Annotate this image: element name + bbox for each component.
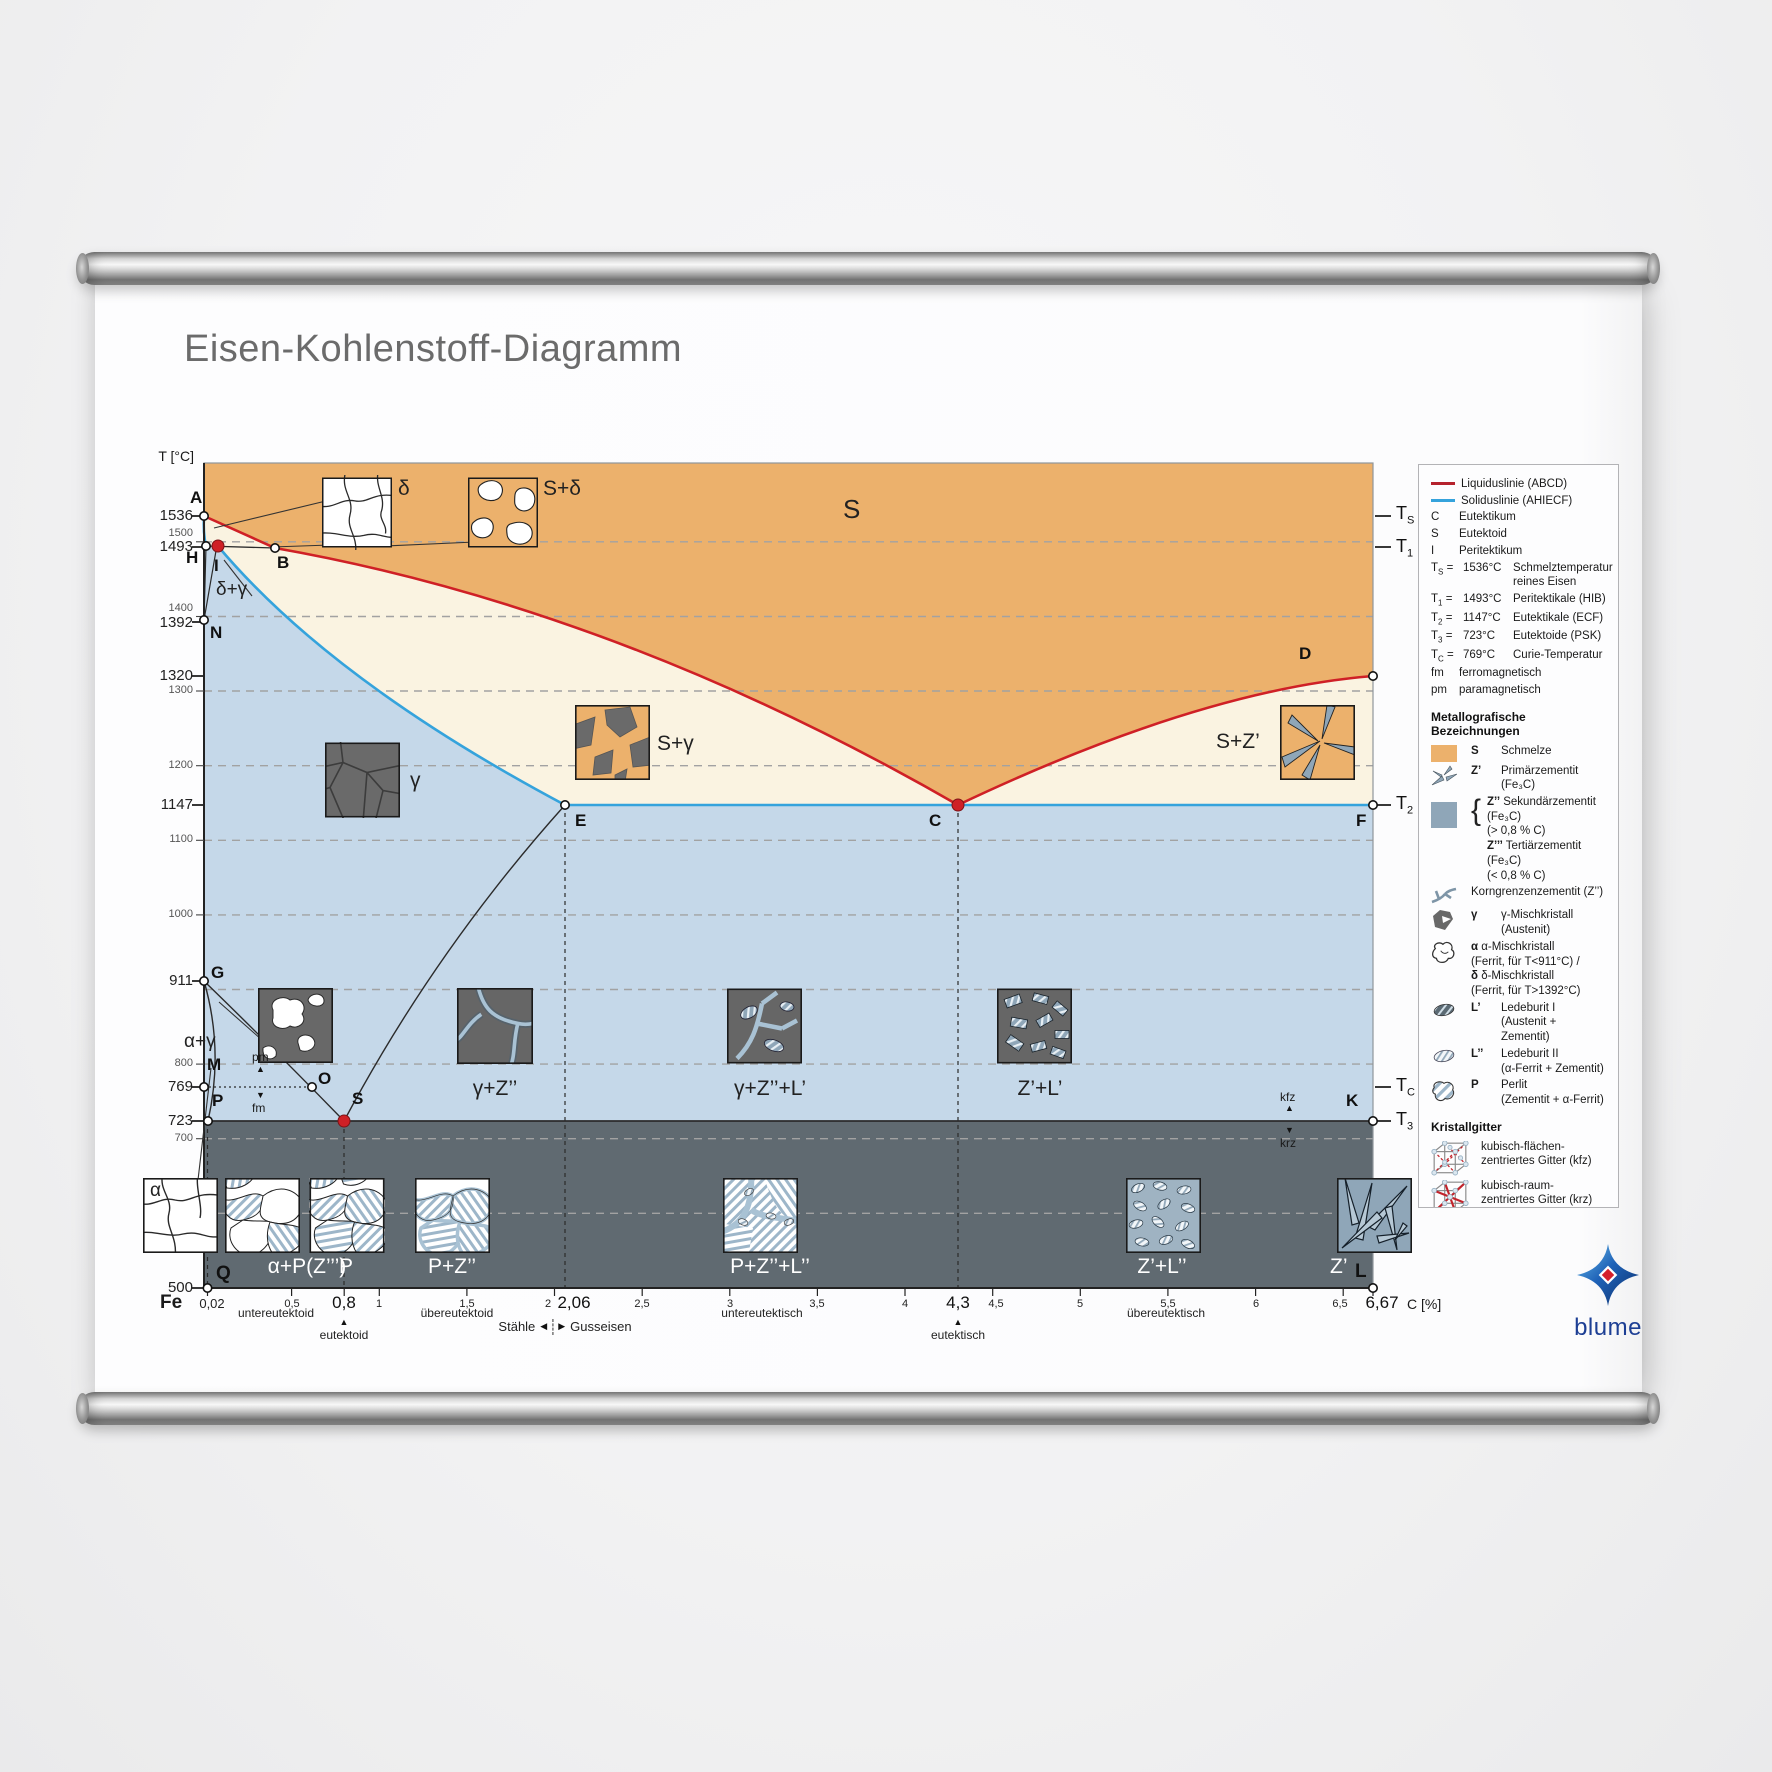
region-alpha-gamma: α+γ [184, 1032, 216, 1052]
right-ticks [1375, 516, 1391, 1121]
ledeburit2-icon [1431, 1047, 1465, 1064]
legend-key: TS = [1431, 561, 1457, 578]
micrograph-gamma [320, 738, 405, 823]
ytick-723: 723 [135, 1113, 193, 1129]
tmark-t1: T1 [1396, 537, 1413, 560]
perlit-icon [1431, 1078, 1465, 1105]
region-z1: Z’ [1330, 1256, 1348, 1278]
legend-desc: Curie-Temperatur [1513, 648, 1602, 663]
xtick-206: 2,06 [557, 1294, 590, 1312]
legend-key: S [1471, 744, 1495, 759]
sekundaerzementit-swatch-icon [1431, 795, 1465, 828]
legend-key: Z’ [1471, 764, 1495, 779]
legend-row-l1: L’ Ledeburit I(Austenit + Zementit) [1431, 1001, 1608, 1045]
arrow-up-kfz-icon: ▲ [1285, 1104, 1294, 1113]
legend-key: C [1431, 510, 1453, 525]
korngrenzenzementit-icon [1431, 885, 1465, 906]
legend-value: Korngrenzenzementit (Z’’) [1471, 885, 1603, 900]
micrograph-z1 [1337, 1178, 1412, 1253]
point-label-n: N [210, 624, 222, 642]
x-ticks [208, 1288, 1374, 1296]
micrograph-s-gamma [573, 705, 652, 782]
micrograph-delta [317, 473, 396, 552]
xtick-65: 6,5 [1332, 1299, 1347, 1311]
legend-key: L’ [1471, 1001, 1495, 1016]
xtick-1: 1 [376, 1299, 382, 1311]
x-axis-unit: C [%] [1407, 1297, 1441, 1312]
xtick-5: 5 [1077, 1299, 1083, 1311]
poster-title: Eisen-Kohlenstoff-Diagramm [184, 330, 682, 370]
xtick-2: 2 [545, 1299, 551, 1311]
legend-row-eutektoid: SEutektoid [1431, 527, 1608, 542]
xtick-4: 4 [902, 1299, 908, 1311]
region-s-z1: S+Z’ [1216, 731, 1260, 753]
legend-value: Eutektikum [1459, 510, 1516, 525]
region-gamma-z2-l1: γ+Z’’+L’ [734, 1078, 806, 1100]
legend-key: L’’ [1471, 1047, 1495, 1062]
micrograph-p-z2 [410, 1178, 495, 1256]
label-staehle-gusseisen: Stähle ◀ ▶ Gusseisen [498, 1319, 631, 1335]
y-major-ticks [192, 516, 204, 1288]
xtick-002: 0,02 [199, 1297, 224, 1311]
point-label-o: O [318, 1070, 331, 1088]
region-z1-l2: Z’+L’’ [1137, 1256, 1186, 1278]
arrow-up-eutektoid-icon: ▲ [340, 1318, 349, 1327]
legend-row-korn: Korngrenzenzementit (Z’’) [1431, 885, 1608, 906]
label-fm: fm [252, 1102, 265, 1115]
xtick-fe: Fe [160, 1293, 182, 1313]
xtick-35: 3,5 [809, 1299, 824, 1311]
region-gamma-z2: γ+Z’’ [473, 1078, 518, 1100]
ytick-1392: 1392 [135, 615, 193, 631]
legend-temp: 1536°C [1463, 561, 1507, 576]
label-untereutektisch: untereutektisch [721, 1307, 802, 1320]
legend-value: γ-Mischkristall (Austenit) [1501, 908, 1608, 937]
legend-key: TC = [1431, 648, 1457, 665]
legend-row-z2-z3: { Z’’ Sekundärzementit (Fe₃C) (> 0,8 % C… [1431, 795, 1608, 883]
legend-key: fm [1431, 666, 1453, 681]
label-gusseisen: Gusseisen [570, 1320, 631, 1334]
micrograph-gamma-z2-l1 [727, 989, 802, 1064]
legend-value: ferromagnetisch [1459, 666, 1541, 681]
legend-value: Peritektikum [1459, 544, 1522, 559]
ytick-911: 911 [135, 973, 193, 989]
xtick-667: 6,67 [1365, 1294, 1398, 1312]
poster-rail-bottom [78, 1392, 1658, 1425]
micrograph-z1-l2 [1126, 1178, 1201, 1253]
brace-icon: { [1471, 797, 1481, 824]
ytick-1000: 1000 [135, 909, 193, 921]
legend-solidus: Soliduslinie (AHIECF) [1431, 494, 1608, 509]
legend-row-t2: T2 = 1147°C Eutektikale (ECF) [1431, 611, 1608, 628]
ytick-1500: 1500 [135, 528, 193, 540]
point-label-h: H [186, 549, 198, 567]
xtick-08: 0,8 [332, 1294, 356, 1312]
divider-dashed [552, 1319, 553, 1335]
legend-row-kfz: kubisch-flächen-zentriertes Gitter (kfz) [1431, 1140, 1608, 1177]
xtick-43: 4,3 [946, 1294, 970, 1312]
tmark-tc: TC [1396, 1076, 1415, 1099]
legend-gitter-heading: Kristallgitter [1431, 1120, 1608, 1134]
point-label-m: M [207, 1056, 221, 1074]
legend-key: pm [1431, 683, 1453, 698]
legend-value: Schmelze [1501, 744, 1552, 759]
legend-alpha-delta-text: α α-Mischkristall (Ferrit, für T<911°C) … [1471, 940, 1581, 999]
ytick-1147: 1147 [135, 797, 193, 813]
label-krz: krz [1280, 1137, 1296, 1150]
tmark-t3: T3 [1396, 1110, 1413, 1133]
arrow-down-krz-icon: ▼ [1285, 1126, 1294, 1135]
arrow-up-eutektisch-icon: ▲ [954, 1318, 963, 1327]
ytick-700: 700 [135, 1133, 193, 1145]
legend-desc: Peritektikale (HIB) [1513, 592, 1606, 607]
blume-star-icon [1576, 1243, 1640, 1307]
micrograph-s-z1 [1280, 705, 1355, 780]
region-schmelze: S [843, 496, 860, 523]
legend-temp: 1147°C [1463, 611, 1507, 626]
label-eutektoid: eutektoid [320, 1329, 369, 1342]
legend-key: T3 = [1431, 629, 1457, 646]
legend-row-alpha-delta: α α-Mischkristall (Ferrit, für T<911°C) … [1431, 940, 1608, 999]
arrow-up-pm-icon: ▲ [256, 1065, 265, 1074]
legend-row-ts: TS = 1536°C Schmelztemperaturreines Eise… [1431, 561, 1608, 590]
legend-liquidus: Liquiduslinie (ABCD) [1431, 477, 1608, 492]
arrow-right-icon: ▶ [558, 1322, 565, 1331]
micrograph-alpha-gamma [258, 988, 333, 1063]
region-s-gamma: S+γ [657, 733, 694, 755]
region-p-z2: P+Z’’ [428, 1256, 476, 1278]
legend-row-tc: TC = 769°C Curie-Temperatur [1431, 648, 1608, 665]
legend-row-krz: kubisch-raum-zentriertes Gitter (krz) [1431, 1179, 1608, 1208]
legend-row-t1: T1 = 1493°C Peritektikale (HIB) [1431, 592, 1608, 609]
region-gamma: γ [410, 770, 421, 792]
tmark-t2: T2 [1396, 794, 1413, 817]
legend-desc: Eutektikale (ECF) [1513, 611, 1603, 626]
legend-key: I [1431, 544, 1453, 559]
legend-row-eutektikum: CEutektikum [1431, 510, 1608, 525]
brand-name: blume [1548, 1314, 1668, 1342]
region-p-z2-l2: P+Z’’+L’’ [730, 1256, 810, 1278]
micrograph-gamma-z2 [455, 983, 538, 1069]
region-p: P [339, 1256, 353, 1278]
legend-met-heading: Metallografische Bezeichnungen [1431, 710, 1608, 738]
point-label-g: G [211, 964, 224, 982]
label-untereutektoid: untereutektoid [238, 1307, 314, 1320]
ytick-1536: 1536 [135, 508, 193, 524]
ytick-769: 769 [135, 1079, 193, 1095]
schmelze-swatch-icon [1431, 744, 1465, 762]
legend-row-perlit: P Perlit(Zementit + α-Ferrit) [1431, 1078, 1608, 1107]
legend-z2-z3-text: Z’’ Sekundärzementit (Fe₃C) (> 0,8 % C) … [1487, 795, 1608, 883]
label-staehle: Stähle [498, 1320, 535, 1334]
region-z1-l1: Z’+L’ [1018, 1078, 1063, 1100]
label-pm: pm [252, 1051, 269, 1064]
point-label-c: C [929, 812, 941, 830]
primaerzementit-icon [1431, 764, 1465, 787]
scene: Eisen-Kohlenstoff-Diagramm T [°C] 1536 1… [0, 0, 1772, 1772]
liquidus-line-swatch-icon [1431, 482, 1455, 485]
region-delta-gamma: δ+γ [216, 580, 247, 600]
legend-value: Ledeburit II(α-Ferrit + Zementit) [1501, 1047, 1604, 1076]
legend-value: kubisch-raum-zentriertes Gitter (krz) [1481, 1179, 1592, 1208]
legend-row-schmelze: S Schmelze [1431, 744, 1608, 762]
solidus-line-swatch-icon [1431, 499, 1455, 502]
legend-liquidus-label: Liquiduslinie (ABCD) [1461, 477, 1567, 492]
point-label-q: Q [216, 1264, 231, 1284]
region-delta: δ [398, 478, 410, 500]
ytick-1100: 1100 [135, 834, 193, 846]
legend-value: Eutektoid [1459, 527, 1507, 542]
legend-row-peritektikum: IPeritektikum [1431, 544, 1608, 559]
label-kfz: kfz [1280, 1091, 1295, 1104]
region-alpha: α [150, 1181, 161, 1201]
ytick-1200: 1200 [135, 760, 193, 772]
legend-row-t3: T3 = 723°C Eutektoide (PSK) [1431, 629, 1608, 646]
point-label-l: L [1355, 1262, 1367, 1282]
legend-value: kubisch-flächen-zentriertes Gitter (kfz) [1481, 1140, 1592, 1169]
legend-value: Primärzementit (Fe₃C) [1501, 764, 1608, 793]
region-s-delta: S+δ [543, 478, 581, 500]
xtick-45: 4,5 [988, 1299, 1003, 1311]
legend-value: paramagnetisch [1459, 683, 1541, 698]
point-label-f: F [1356, 812, 1366, 830]
label-uebereutektisch: übereutektisch [1127, 1307, 1205, 1320]
legend-key: S [1431, 527, 1453, 542]
arrow-down-fm-icon: ▼ [256, 1091, 265, 1100]
label-eutektisch: eutektisch [931, 1329, 985, 1342]
legend-row-z1: Z’ Primärzementit (Fe₃C) [1431, 764, 1608, 793]
tmark-ts: TS [1396, 504, 1414, 527]
point-label-b: B [277, 554, 289, 572]
ytick-1400: 1400 [135, 603, 193, 615]
legend-row-l2: L’’ Ledeburit II(α-Ferrit + Zementit) [1431, 1047, 1608, 1076]
legend-row-fm: fmferromagnetisch [1431, 666, 1608, 681]
legend-value: Perlit(Zementit + α-Ferrit) [1501, 1078, 1604, 1107]
region-alpha-p-z3: α+P(Z’’’) [268, 1256, 346, 1278]
legend-key: P [1471, 1078, 1495, 1093]
legend-key: T2 = [1431, 611, 1457, 628]
phase-regions [204, 463, 1373, 1288]
ytick-1320: 1320 [135, 668, 193, 684]
xtick-25: 2,5 [634, 1299, 649, 1311]
point-label-a: A [190, 489, 202, 507]
point-label-s: S [352, 1090, 363, 1108]
ytick-1300: 1300 [135, 685, 193, 697]
legend-key: T1 = [1431, 592, 1457, 609]
micrograph-p [305, 1173, 390, 1256]
legend-row-pm: pmparamagnetisch [1431, 683, 1608, 698]
ferrit-icon [1431, 940, 1465, 967]
brand-logo: blume [1548, 1243, 1668, 1342]
legend-temp: 723°C [1463, 629, 1507, 644]
micrograph-s-delta [468, 478, 538, 548]
legend-row-gamma: γ γ-Mischkristall (Austenit) [1431, 908, 1608, 937]
poster-rail-top [78, 252, 1658, 285]
point-label-e: E [575, 812, 586, 830]
micrograph-p-z2-l2 [718, 1173, 803, 1258]
micrograph-z1-l1 [997, 989, 1072, 1064]
ytick-1493: 1493 [135, 539, 193, 555]
ledeburit1-icon [1431, 1001, 1465, 1018]
legend-temp: 1493°C [1463, 592, 1507, 607]
legend-temp: 769°C [1463, 648, 1507, 663]
legend-solidus-label: Soliduslinie (AHIECF) [1461, 494, 1572, 509]
point-label-i: I [214, 557, 219, 575]
label-uebereutektoid: übereutektoid [421, 1307, 494, 1320]
point-label-k: K [1346, 1092, 1358, 1110]
legend-desc: Eutektoide (PSK) [1513, 629, 1601, 644]
legend-key: γ [1471, 908, 1495, 923]
y-axis-title: T [°C] [118, 449, 194, 464]
point-label-p: P [212, 1092, 223, 1110]
ytick-800: 800 [135, 1058, 193, 1070]
micrograph-alpha-p [220, 1173, 305, 1256]
kfz-cube-icon [1431, 1140, 1475, 1177]
legend-value: Ledeburit I(Austenit + Zementit) [1501, 1001, 1608, 1045]
austenit-icon [1431, 908, 1465, 931]
legend: Liquiduslinie (ABCD) Soliduslinie (AHIEC… [1418, 464, 1619, 1208]
legend-desc: Schmelztemperaturreines Eisen [1513, 561, 1613, 590]
point-label-d: D [1299, 645, 1311, 663]
arrow-left-icon: ◀ [540, 1322, 547, 1331]
xtick-6: 6 [1253, 1299, 1259, 1311]
krz-cube-icon [1431, 1179, 1475, 1208]
